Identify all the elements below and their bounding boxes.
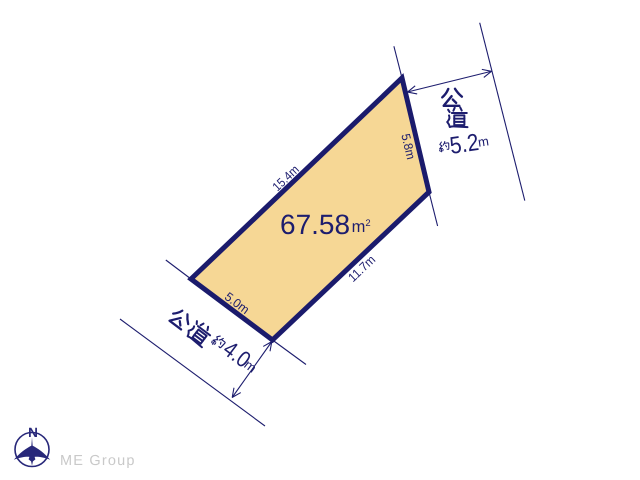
svg-text:ME Group: ME Group	[60, 453, 136, 469]
svg-text:m: m	[477, 133, 490, 149]
svg-text:N: N	[28, 425, 38, 440]
svg-text:5.2: 5.2	[448, 129, 480, 160]
